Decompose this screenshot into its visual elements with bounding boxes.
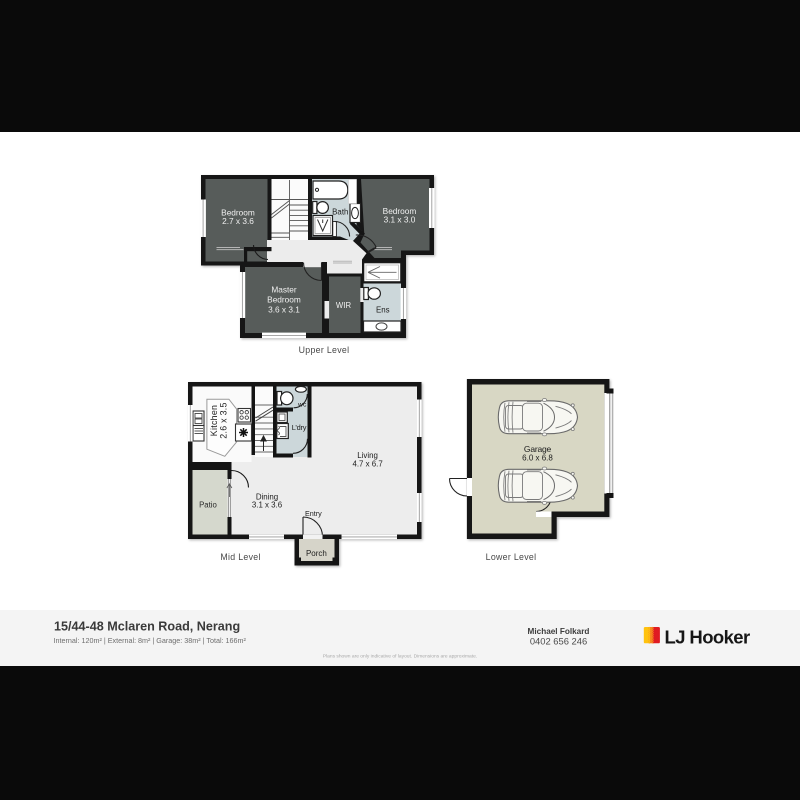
svg-text:0402 656 246: 0402 656 246 xyxy=(530,636,587,647)
svg-text:Kitchen: Kitchen xyxy=(209,405,219,436)
svg-text:3.1 x 3.6: 3.1 x 3.6 xyxy=(252,501,283,510)
svg-text:Internal: 120m² | External: 8m: Internal: 120m² | External: 8m² | Garage… xyxy=(54,636,247,645)
svg-text:Lower Level: Lower Level xyxy=(486,552,537,562)
svg-text:Bath: Bath xyxy=(332,208,348,217)
svg-text:Bedroom: Bedroom xyxy=(267,294,301,304)
svg-text:Patio: Patio xyxy=(199,500,217,509)
svg-text:wc: wc xyxy=(297,402,307,409)
svg-text:LJ Hooker: LJ Hooker xyxy=(665,626,750,647)
svg-text:15/44-48 Mclaren Road, Nerang: 15/44-48 Mclaren Road, Nerang xyxy=(54,620,240,634)
svg-text:Entry: Entry xyxy=(305,509,322,518)
svg-text:2.7 x 3.6: 2.7 x 3.6 xyxy=(222,216,254,226)
svg-text:Garage: Garage xyxy=(524,444,552,454)
svg-text:WIR: WIR xyxy=(336,301,352,310)
svg-text:3.1 x 3.0: 3.1 x 3.0 xyxy=(384,215,416,225)
svg-text:6.0 x 6.8: 6.0 x 6.8 xyxy=(522,453,553,462)
svg-text:Plans shown are only indicativ: Plans shown are only indicative of layou… xyxy=(323,653,477,659)
svg-text:L’dry: L’dry xyxy=(292,423,307,432)
svg-text:2.6 x 3.5: 2.6 x 3.5 xyxy=(218,402,228,438)
svg-text:Ens: Ens xyxy=(376,306,390,315)
svg-text:Mid Level: Mid Level xyxy=(220,552,260,562)
svg-text:4.7 x 6.7: 4.7 x 6.7 xyxy=(352,459,382,468)
svg-text:Michael Folkard: Michael Folkard xyxy=(528,627,590,636)
svg-text:Master: Master xyxy=(271,284,297,294)
svg-text:Upper Level: Upper Level xyxy=(299,345,350,355)
svg-text:3.6 x 3.1: 3.6 x 3.1 xyxy=(268,304,300,314)
svg-text:Porch: Porch xyxy=(306,549,327,558)
